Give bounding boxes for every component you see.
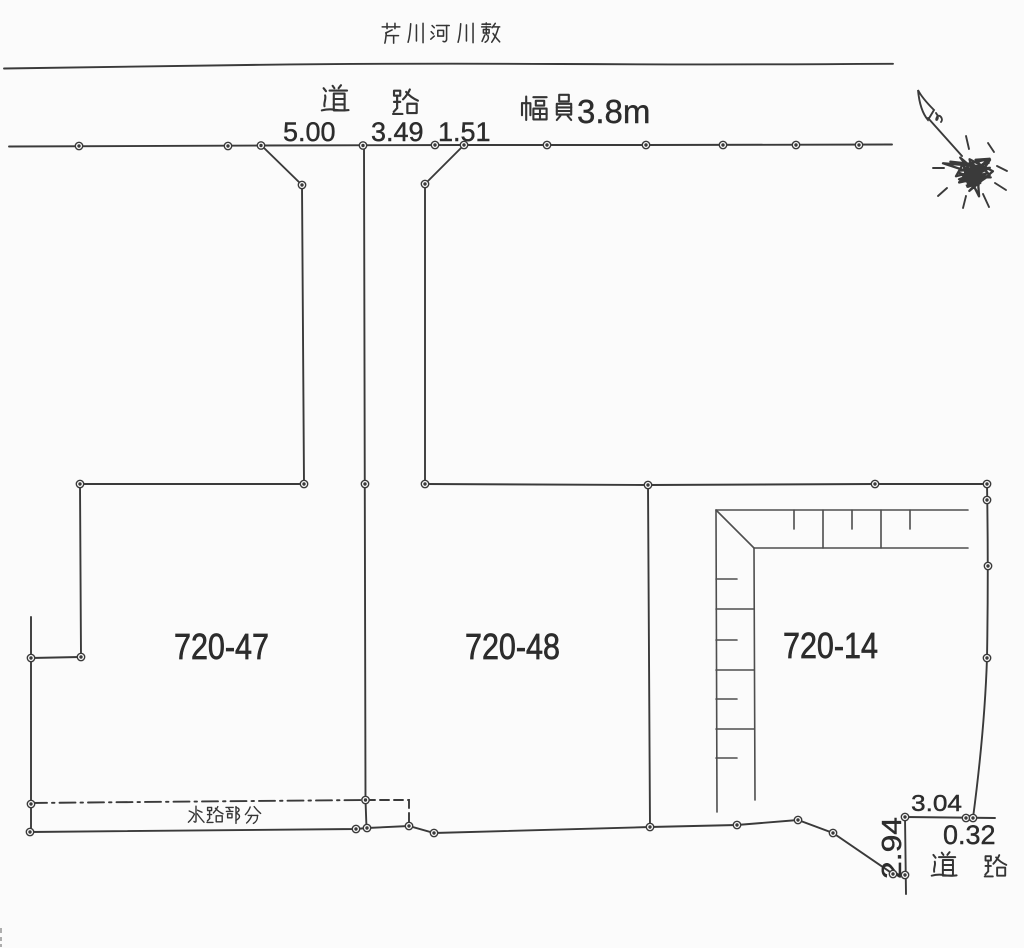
svg-text:2.94: 2.94 [876,817,907,879]
svg-text:3.49: 3.49 [371,117,424,147]
svg-text:720-14: 720-14 [783,625,878,666]
svg-text:3.04: 3.04 [911,790,962,816]
svg-text:3.8m: 3.8m [577,93,650,130]
svg-text:5.00: 5.00 [283,117,336,147]
svg-text:720-47: 720-47 [174,626,269,667]
svg-text:0.32: 0.32 [943,820,996,850]
svg-text:720-48: 720-48 [465,626,560,667]
